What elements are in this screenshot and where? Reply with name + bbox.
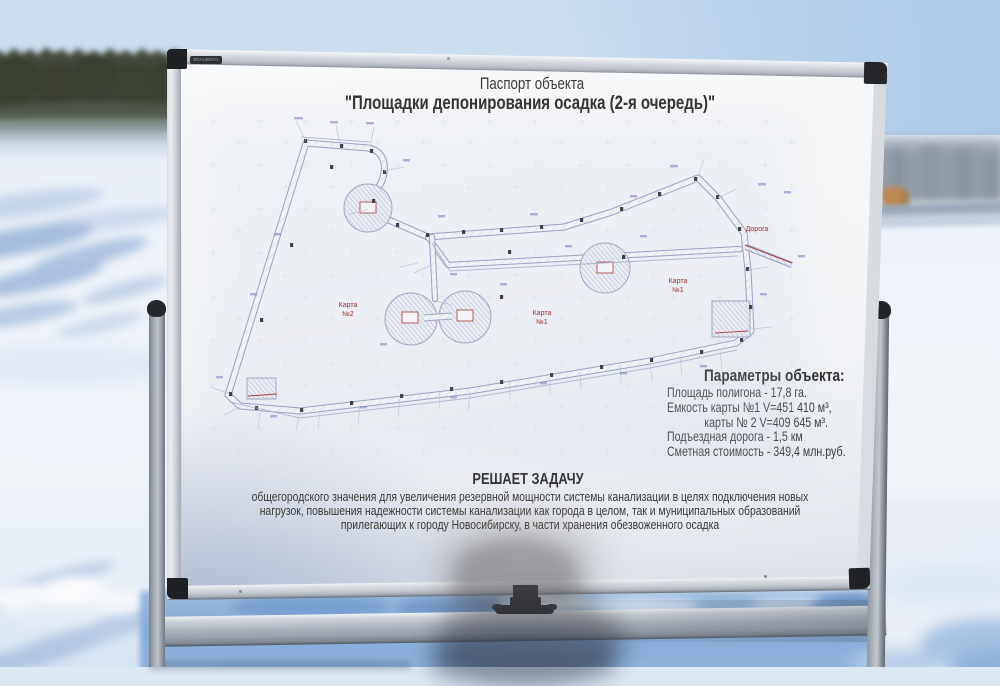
svg-text:Дорога: Дорога	[746, 226, 769, 233]
svg-text:Карта: Карта	[669, 278, 688, 285]
svg-text:№2: №2	[342, 311, 354, 318]
svg-text:№1: №1	[536, 319, 548, 326]
svg-text:Карта: Карта	[533, 310, 552, 317]
svg-text:Карта: Карта	[339, 302, 358, 309]
svg-text:№1: №1	[672, 287, 684, 294]
